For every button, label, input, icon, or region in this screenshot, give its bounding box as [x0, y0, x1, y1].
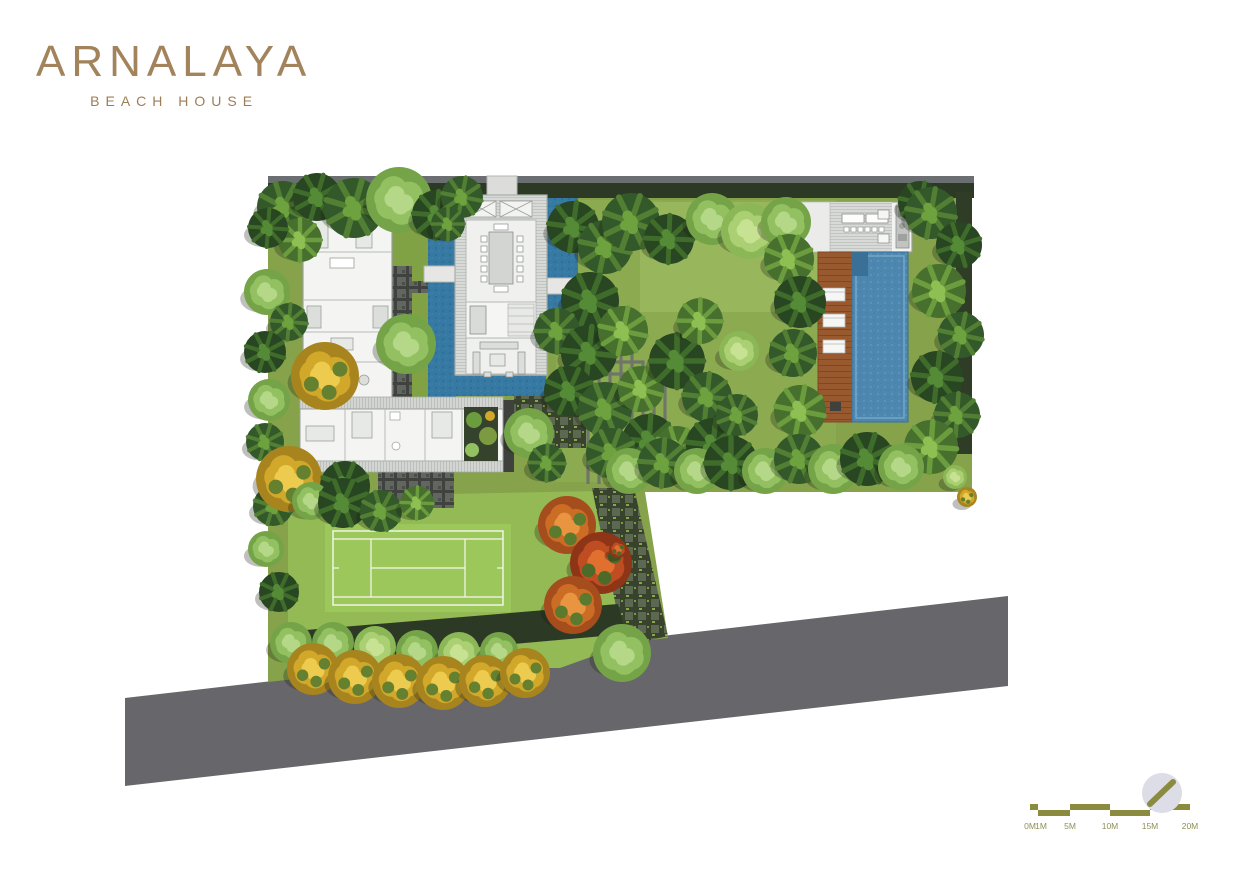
svg-text:20M: 20M — [1182, 821, 1199, 831]
page: ARNALAYA BEACH HOUSE — [0, 0, 1250, 870]
north-indicator-icon — [1142, 773, 1182, 813]
svg-text:15M: 15M — [1142, 821, 1159, 831]
svg-text:5M: 5M — [1064, 821, 1076, 831]
site-plan: 0M1M5M10M15M20M — [0, 0, 1250, 870]
tennis-court — [325, 524, 511, 612]
pool-deck — [818, 252, 908, 422]
svg-text:1M: 1M — [1035, 821, 1047, 831]
main-pavilion — [455, 195, 547, 377]
svg-text:10M: 10M — [1102, 821, 1119, 831]
